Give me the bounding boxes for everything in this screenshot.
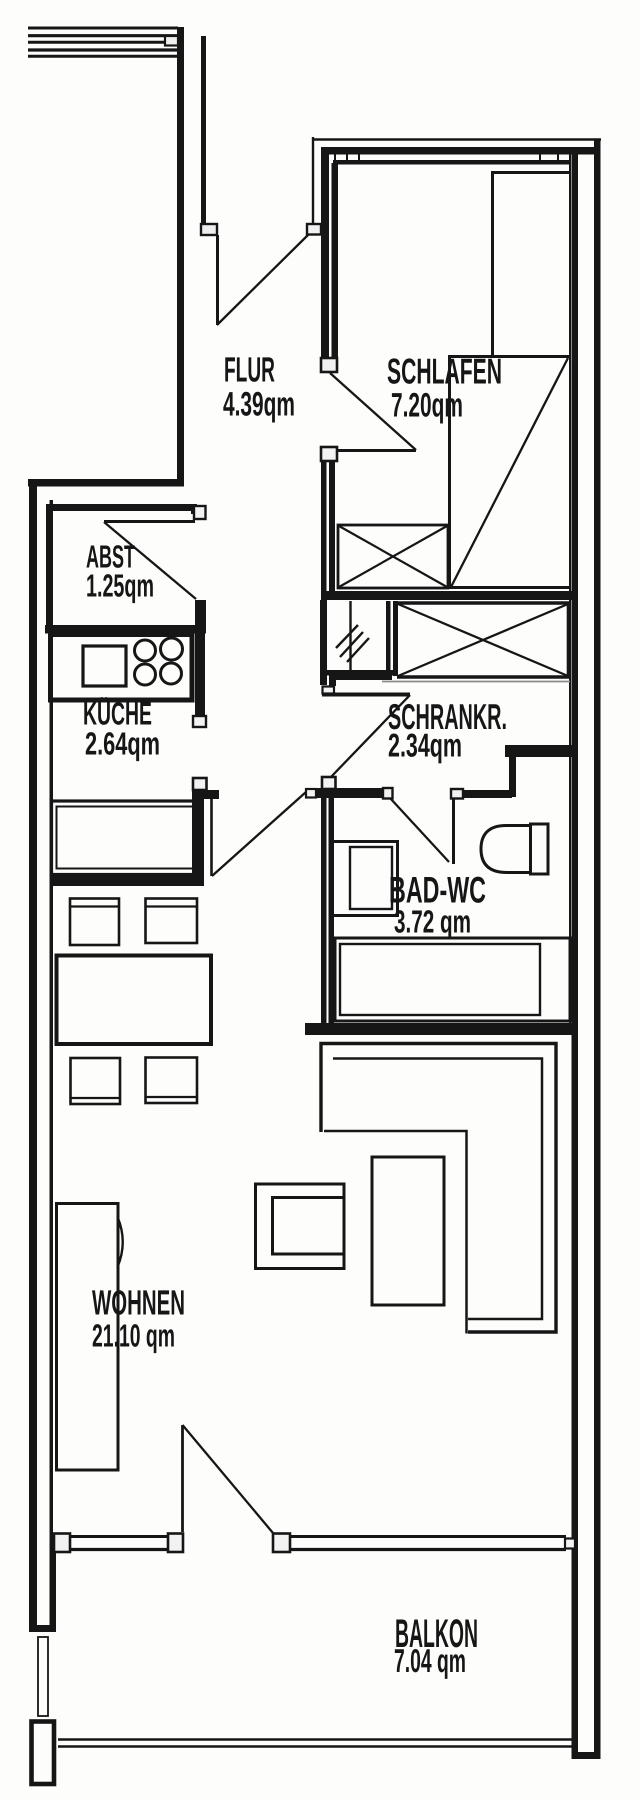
svg-text:2.34qm: 2.34qm <box>388 727 462 764</box>
svg-text:7.04 qm: 7.04 qm <box>394 1642 466 1679</box>
svg-text:3.72 qm: 3.72 qm <box>394 904 471 940</box>
svg-text:21.10 qm: 21.10 qm <box>92 1318 175 1354</box>
svg-text:4.39qm: 4.39qm <box>223 386 295 424</box>
svg-text:FLUR: FLUR <box>224 351 275 390</box>
svg-text:SCHLAFEN: SCHLAFEN <box>387 351 502 392</box>
svg-text:2.64qm: 2.64qm <box>85 726 160 762</box>
svg-text:1.25qm: 1.25qm <box>86 568 154 604</box>
svg-text:7.20qm: 7.20qm <box>391 387 463 425</box>
